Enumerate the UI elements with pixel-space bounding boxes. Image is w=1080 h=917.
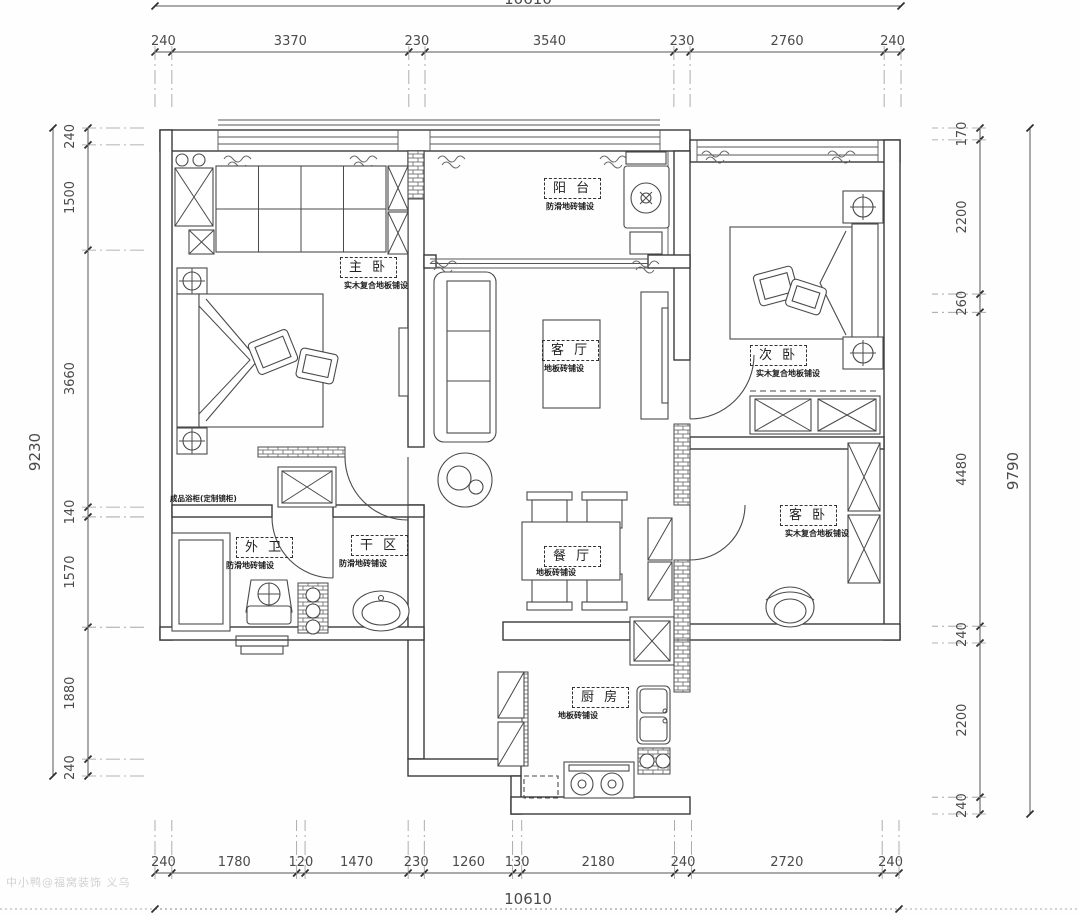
dim-left-segment-3: 140 xyxy=(63,500,78,525)
washing-machine xyxy=(624,166,669,228)
room-note-balcony: 防滑地砖铺设 xyxy=(546,201,601,212)
dim-left-segment-4: 1570 xyxy=(63,556,78,589)
cabinet xyxy=(498,672,524,718)
step xyxy=(241,646,283,654)
dim-bottom-segment-7: 2180 xyxy=(582,855,615,870)
dim-right-segment-3: 4480 xyxy=(955,453,970,486)
floor-plan-drawing: 2403370230354023027602402401780120147023… xyxy=(0,0,1080,917)
furniture-balcony xyxy=(624,152,669,254)
washbasin xyxy=(353,591,409,631)
dim-right-segment-5: 2200 xyxy=(955,704,970,737)
room-label-bathroom: 外 卫 防滑地砖铺设 xyxy=(236,536,293,571)
room-name-balcony: 阳 台 xyxy=(544,178,601,199)
dim-top-segment-0: 240 xyxy=(151,34,176,49)
bedside-lamp xyxy=(843,337,883,369)
room-name-guest-bedroom: 客 卧 xyxy=(780,505,837,526)
dim-total-bottom: 10610 xyxy=(504,890,552,908)
floor-plan-canvas: 2403370230354023027602402401780120147023… xyxy=(0,0,1080,917)
dim-top-segment-2: 230 xyxy=(404,34,429,49)
dim-left-segment-0: 240 xyxy=(63,124,78,149)
armchair xyxy=(766,587,814,627)
tv xyxy=(399,328,408,396)
room-note-guest-bedroom: 实木复合地板铺设 xyxy=(785,528,849,539)
door-guest-bedroom xyxy=(690,505,745,560)
door-bedroom-2 xyxy=(690,355,754,419)
room-name-bedroom-2: 次 卧 xyxy=(750,345,807,366)
dim-top-segment-6: 240 xyxy=(880,34,905,49)
dim-bottom-segment-6: 130 xyxy=(505,855,530,870)
column-box xyxy=(388,212,408,254)
dim-bottom-segment-1: 1780 xyxy=(218,855,251,870)
shower xyxy=(172,533,230,631)
corridor-column xyxy=(278,467,336,507)
room-name-dining-room: 餐 厅 xyxy=(544,546,601,567)
room-name-living-room: 客 厅 xyxy=(542,340,599,361)
room-note-dining-room: 地板砖铺设 xyxy=(536,567,601,578)
dim-left-segment-1: 1500 xyxy=(63,181,78,214)
dim-bottom-segment-2: 120 xyxy=(288,855,313,870)
dim-bottom-segment-5: 1260 xyxy=(452,855,485,870)
dim-top-segment-1: 3370 xyxy=(274,34,307,49)
room-label-living-room: 客 厅 地板砖铺设 xyxy=(542,339,599,374)
dim-tick xyxy=(152,906,159,913)
dim-right-segment-0: 170 xyxy=(955,122,970,147)
dim-bottom-segment-0: 240 xyxy=(151,855,176,870)
watermark: 中小鸭@福窝装饰 义乌 xyxy=(6,874,131,890)
tv-cabinet xyxy=(641,292,668,419)
column-box xyxy=(388,166,408,210)
dim-top-segment-4: 230 xyxy=(670,34,695,49)
column-box xyxy=(189,230,214,254)
dim-right-segment-4: 240 xyxy=(955,622,970,647)
cabinet xyxy=(498,722,524,766)
sink-area xyxy=(524,776,558,798)
column-box xyxy=(175,168,213,226)
dim-bottom-segment-9: 2720 xyxy=(770,855,803,870)
balcony-sliding-door xyxy=(430,259,648,268)
vanity-note: 成品浴柜(定制镜柜) xyxy=(170,493,237,504)
dim-bottom-segment-3: 1470 xyxy=(340,855,373,870)
room-label-dining-room: 餐 厅 地板砖铺设 xyxy=(544,545,601,578)
room-label-guest-bedroom: 客 卧 实木复合地板铺设 xyxy=(780,504,849,539)
dim-top-segment-5: 2760 xyxy=(771,34,804,49)
room-name-master-bedroom: 主 卧 xyxy=(340,257,397,278)
bed xyxy=(177,294,339,427)
room-name-bathroom: 外 卫 xyxy=(236,537,293,558)
room-note-kitchen: 地板砖铺设 xyxy=(558,710,629,721)
room-label-kitchen: 厨 房 地板砖铺设 xyxy=(572,686,629,721)
bedside-lamp xyxy=(177,268,207,294)
room-label-bedroom-2: 次 卧 实木复合地板铺设 xyxy=(750,344,820,379)
room-note-bathroom: 防滑地砖铺设 xyxy=(226,560,293,571)
stove xyxy=(564,762,634,798)
dim-left-segment-5: 1880 xyxy=(63,677,78,710)
bed xyxy=(730,224,878,340)
room-note-dry-area: 防滑地砖铺设 xyxy=(339,558,408,569)
furniture-bedroom-2 xyxy=(730,191,883,434)
bedside-lamp xyxy=(843,191,883,223)
wardrobe xyxy=(848,443,880,583)
wardrobe xyxy=(750,391,880,434)
dim-total-right: 9790 xyxy=(1004,452,1022,490)
side-table xyxy=(438,453,492,507)
dim-bottom-segment-4: 230 xyxy=(404,855,429,870)
room-name-kitchen: 厨 房 xyxy=(572,687,629,708)
bedside-lamp xyxy=(177,428,207,454)
dim-left-segment-2: 3660 xyxy=(63,362,78,395)
toilet xyxy=(246,580,292,624)
room-name-dry-area: 干 区 xyxy=(351,535,408,556)
dim-total-left: 9230 xyxy=(26,433,44,471)
dim-right-segment-1: 2200 xyxy=(955,200,970,233)
room-note-living-room: 地板砖铺设 xyxy=(544,363,599,374)
dim-bottom-segment-10: 240 xyxy=(878,855,903,870)
pipe-duct xyxy=(306,588,320,634)
dim-left-segment-6: 240 xyxy=(63,755,78,780)
room-label-master-bedroom: 主 卧 实木复合地板铺设 xyxy=(340,256,408,291)
dim-total-top: 10610 xyxy=(504,0,552,8)
room-note-master-bedroom: 实木复合地板铺设 xyxy=(344,280,408,291)
dim-bottom-segment-8: 240 xyxy=(671,855,696,870)
room-label-dry-area: 干 区 防滑地砖铺设 xyxy=(351,534,408,569)
shoe-cabinet xyxy=(648,518,672,600)
dim-right-segment-6: 240 xyxy=(955,793,970,818)
dim-top-segment-3: 3540 xyxy=(533,34,566,49)
fridge xyxy=(637,686,670,744)
room-note-bedroom-2: 实木复合地板铺设 xyxy=(756,368,820,379)
column-box xyxy=(630,617,674,665)
dim-right-segment-2: 260 xyxy=(955,291,970,316)
room-label-balcony: 阳 台 防滑地砖铺设 xyxy=(544,177,601,212)
sofa xyxy=(434,272,496,442)
